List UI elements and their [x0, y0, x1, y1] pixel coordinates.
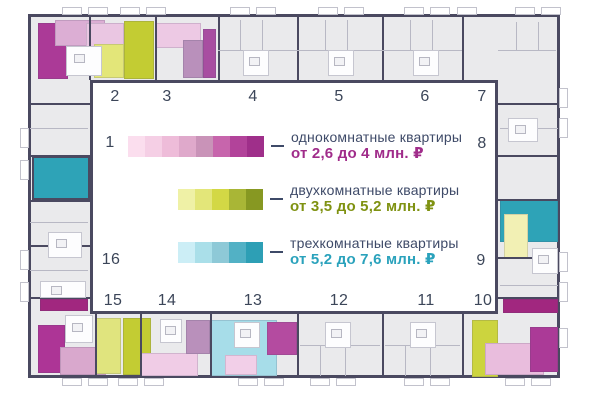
stairwell — [508, 118, 538, 142]
room-divider-line — [516, 22, 517, 50]
room-divider-line — [498, 50, 556, 51]
entrance-number-1: 1 — [105, 135, 114, 151]
wall-divider — [498, 199, 560, 201]
wall-divider — [462, 314, 464, 378]
legend-item-two-room: двухкомнатные квартиры от 3,5 до 5,2 млн… — [178, 182, 459, 216]
stairwell — [66, 46, 102, 76]
unit-two-room[interactable] — [124, 21, 154, 79]
balcony-tick — [20, 160, 29, 180]
swatch-segment — [213, 136, 230, 157]
stairwell — [328, 50, 354, 76]
balcony-tick — [144, 378, 164, 386]
legend-price-three-room: от 5,2 до 7,6 млн. ₽ — [290, 251, 459, 269]
room-divider-line — [345, 346, 346, 376]
entrance-number-15: 15 — [104, 293, 122, 309]
legend-label-two-room: двухкомнатные квартиры — [290, 182, 459, 198]
room-divider-line — [262, 20, 263, 50]
swatch-segment — [212, 242, 229, 263]
swatch-segment — [145, 136, 162, 157]
legend-price-two-room: от 3,5 до 5,2 млн. ₽ — [290, 198, 459, 216]
room-divider-line — [320, 346, 321, 376]
stairwell — [234, 322, 260, 348]
unit-one-room[interactable] — [40, 299, 88, 311]
apartment-floorplan-selector: однокомнатные квартиры от 2,6 до 4 млн. … — [0, 0, 600, 400]
entrance-number-8: 8 — [477, 136, 486, 152]
swatch-segment — [229, 242, 246, 263]
unit-one-room[interactable] — [141, 353, 198, 376]
swatch-segment — [178, 189, 195, 210]
entrance-number-11: 11 — [417, 293, 434, 309]
balcony-tick — [541, 7, 561, 15]
wall-divider — [155, 14, 157, 80]
entrance-number-13: 13 — [244, 293, 262, 309]
balcony-tick — [88, 378, 108, 386]
swatch-segment — [179, 136, 196, 157]
unit-one-room[interactable] — [203, 29, 216, 78]
balcony-tick — [238, 378, 258, 386]
balcony-tick — [430, 378, 450, 386]
stairwell — [65, 315, 93, 343]
balcony-tick — [457, 7, 477, 15]
entrance-number-4: 4 — [248, 89, 257, 105]
balcony-tick — [120, 7, 140, 15]
wall-divider — [297, 314, 299, 378]
unit-one-room[interactable] — [267, 322, 297, 355]
entrance-number-14: 14 — [158, 293, 176, 309]
wall-divider — [28, 155, 90, 157]
balcony-tick — [20, 128, 29, 148]
room-divider-line — [240, 20, 241, 50]
balcony-tick — [62, 7, 82, 15]
legend-price-one-room: от 2,6 до 4 млн. ₽ — [291, 145, 462, 163]
swatch-segment — [195, 242, 212, 263]
wall-divider — [28, 200, 90, 202]
legend-dash — [271, 145, 284, 147]
balcony-tick — [318, 7, 338, 15]
entrance-number-3: 3 — [162, 89, 171, 105]
unit-two-room[interactable] — [95, 318, 121, 374]
three-room-gradient-swatch — [178, 242, 263, 263]
balcony-tick — [515, 7, 535, 15]
unit-two-room[interactable] — [504, 214, 528, 258]
balcony-tick — [88, 7, 108, 15]
balcony-tick — [256, 7, 276, 15]
stairwell — [40, 281, 86, 298]
unit-one-room[interactable] — [186, 320, 210, 354]
swatch-segment — [162, 136, 179, 157]
balcony-tick — [264, 378, 284, 386]
swatch-segment — [230, 136, 247, 157]
room-divider-line — [430, 346, 431, 376]
room-divider-line — [30, 128, 88, 129]
room-divider-line — [325, 20, 326, 50]
stairwell — [48, 232, 82, 258]
wall-divider — [140, 314, 142, 378]
balcony-tick — [559, 282, 568, 302]
entrance-number-12: 12 — [330, 293, 348, 309]
balcony-tick — [531, 378, 551, 386]
entrance-number-10: 10 — [474, 293, 492, 309]
swatch-segment — [178, 242, 195, 263]
swatch-segment — [212, 189, 229, 210]
unit-three-room[interactable] — [32, 156, 90, 200]
balcony-tick — [146, 7, 166, 15]
swatch-segment — [246, 242, 263, 263]
balcony-tick — [344, 7, 364, 15]
room-divider-line — [432, 20, 433, 50]
balcony-tick — [336, 378, 356, 386]
two-room-gradient-swatch — [178, 189, 263, 210]
unit-one-room[interactable] — [225, 355, 257, 375]
room-divider-line — [347, 20, 348, 50]
balcony-tick — [230, 7, 250, 15]
legend-dash — [270, 251, 283, 253]
wall-divider — [218, 14, 220, 80]
wall-divider — [382, 14, 384, 80]
swatch-segment — [229, 189, 246, 210]
balcony-tick — [404, 378, 424, 386]
stairwell — [243, 50, 269, 76]
legend-item-one-room: однокомнатные квартиры от 2,6 до 4 млн. … — [128, 129, 462, 163]
balcony-tick — [559, 88, 568, 108]
balcony-tick — [118, 378, 138, 386]
swatch-segment — [128, 136, 145, 157]
room-divider-line — [30, 270, 88, 271]
legend-label-one-room: однокомнатные квартиры — [291, 129, 462, 145]
room-divider-line — [500, 285, 558, 286]
balcony-tick — [559, 118, 568, 138]
legend-label-three-room: трехкомнатные квартиры — [290, 235, 459, 251]
room-divider-line — [410, 20, 411, 50]
balcony-tick — [559, 252, 568, 272]
wall-divider — [382, 314, 384, 378]
room-divider-line — [30, 222, 88, 223]
entrance-number-16: 16 — [102, 252, 120, 268]
wall-divider — [28, 103, 90, 105]
entrance-number-5: 5 — [334, 89, 343, 105]
legend-dash — [270, 198, 283, 200]
one-room-gradient-swatch — [128, 136, 264, 157]
wall-divider — [297, 14, 299, 80]
stairwell — [413, 50, 439, 76]
room-divider-line — [538, 22, 539, 50]
balcony-tick — [62, 378, 82, 386]
stairwell — [160, 319, 182, 343]
balcony-tick — [20, 282, 29, 302]
legend-item-three-room: трехкомнатные квартиры от 5,2 до 7,6 млн… — [178, 235, 459, 269]
wall-divider — [462, 14, 464, 80]
balcony-tick — [430, 7, 450, 15]
balcony-tick — [404, 7, 424, 15]
wall-divider — [498, 103, 560, 105]
entrance-number-7: 7 — [477, 89, 486, 105]
swatch-segment — [247, 136, 264, 157]
entrance-number-6: 6 — [420, 89, 429, 105]
balcony-tick — [559, 328, 568, 348]
unit-one-room[interactable] — [503, 299, 558, 313]
entrance-number-9: 9 — [476, 253, 485, 269]
wall-divider — [498, 297, 560, 299]
wall-divider — [210, 314, 212, 378]
entrance-number-2: 2 — [110, 89, 119, 105]
wall-divider — [95, 314, 97, 378]
balcony-tick — [20, 250, 29, 270]
stairwell — [532, 248, 558, 274]
swatch-segment — [195, 189, 212, 210]
swatch-segment — [196, 136, 213, 157]
stairwell — [410, 322, 436, 348]
room-divider-line — [405, 346, 406, 376]
unit-one-room[interactable] — [183, 40, 203, 78]
balcony-tick — [310, 378, 330, 386]
swatch-segment — [246, 189, 263, 210]
stairwell — [325, 322, 351, 348]
wall-divider — [498, 155, 560, 157]
balcony-tick — [505, 378, 525, 386]
unit-one-room[interactable] — [530, 327, 558, 372]
